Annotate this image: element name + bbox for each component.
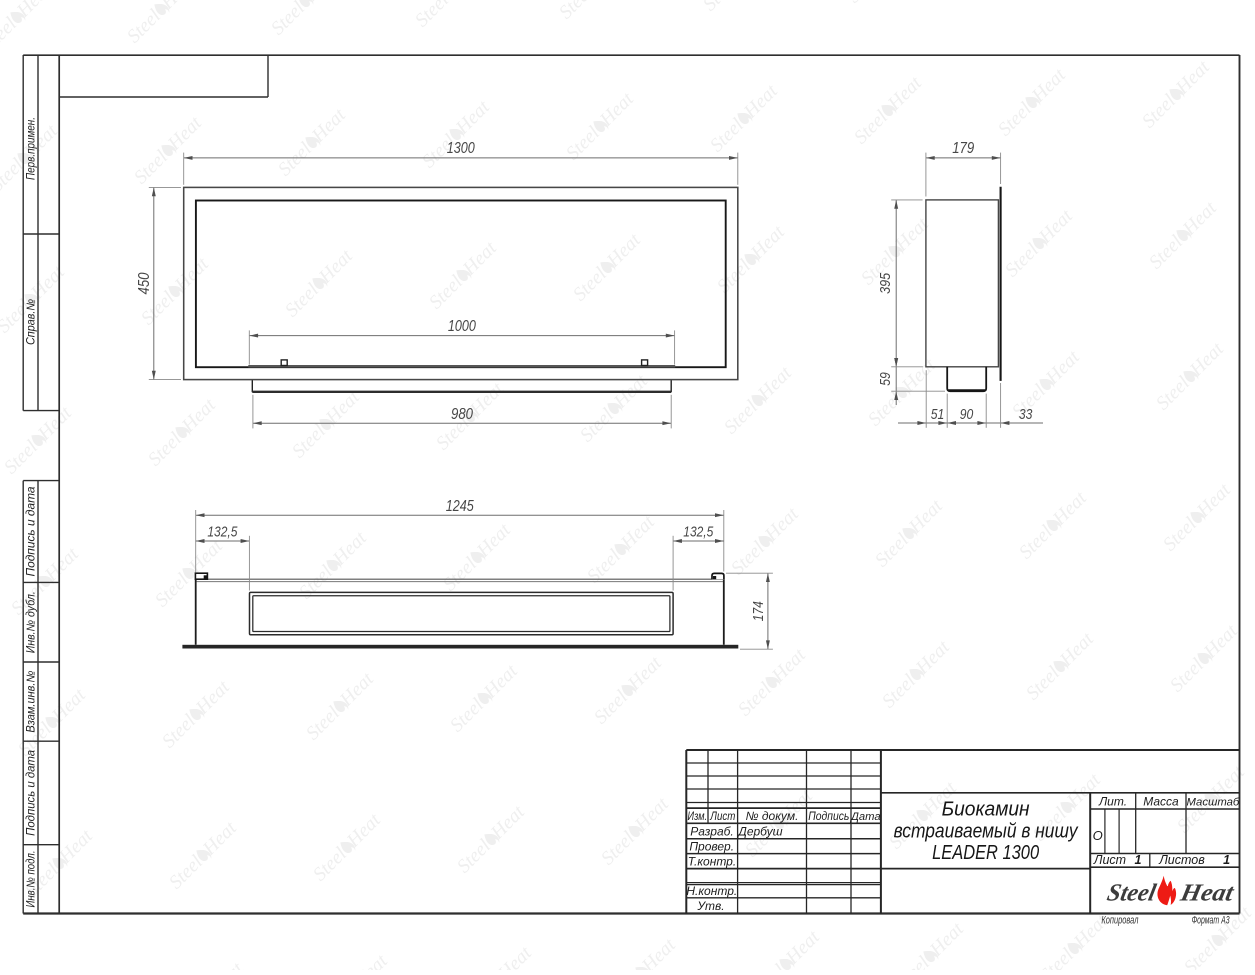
svg-text:Формат А3: Формат А3	[1192, 915, 1231, 927]
svg-text:Подпись: Подпись	[808, 811, 849, 823]
svg-text:Взам.инв.№: Взам.инв.№	[26, 670, 38, 733]
svg-text:О: О	[1093, 828, 1103, 843]
svg-text:Масштаб: Масштаб	[1187, 796, 1240, 808]
svg-text:395: 395	[877, 272, 894, 294]
svg-text:1300: 1300	[447, 140, 475, 157]
svg-text:Листов: Листов	[1158, 853, 1205, 867]
svg-text:Разраб.: Разраб.	[690, 824, 733, 838]
svg-text:980: 980	[451, 406, 473, 423]
svg-text:Биокамин: Биокамин	[942, 798, 1030, 820]
svg-text:Дербуш: Дербуш	[736, 824, 782, 838]
svg-text:Steel: Steel	[1105, 880, 1159, 907]
svg-text:Лист: Лист	[1093, 853, 1126, 867]
svg-text:Подпись и дата: Подпись и дата	[26, 750, 38, 836]
svg-text:Т.контр.: Т.контр.	[688, 854, 736, 868]
svg-text:51: 51	[931, 407, 945, 423]
svg-text:1: 1	[1135, 853, 1142, 867]
svg-text:№ докум.: № докум.	[746, 809, 799, 823]
svg-text:1245: 1245	[446, 498, 474, 515]
svg-text:179: 179	[952, 140, 974, 157]
svg-text:Н.контр.: Н.контр.	[686, 884, 737, 898]
svg-text:1: 1	[1223, 853, 1230, 867]
svg-text:33: 33	[1019, 407, 1033, 423]
svg-text:Лит.: Лит.	[1098, 794, 1127, 808]
svg-text:Копировал: Копировал	[1101, 915, 1138, 927]
svg-text:встраиваемый в нишу: встраиваемый в нишу	[894, 820, 1079, 842]
svg-text:Изм.: Изм.	[688, 811, 708, 823]
svg-text:174: 174	[751, 601, 767, 621]
svg-text:Лист: Лист	[709, 811, 735, 823]
svg-text:Масса: Масса	[1143, 794, 1179, 808]
svg-text:90: 90	[960, 407, 974, 423]
svg-text:Справ.№: Справ.№	[26, 298, 38, 345]
svg-text:450: 450	[136, 272, 153, 294]
svg-text:Перв.примен.: Перв.примен.	[26, 117, 38, 180]
svg-text:LEADER 1300: LEADER 1300	[932, 842, 1039, 864]
svg-text:Провер.: Провер.	[689, 839, 734, 853]
svg-text:Дата: Дата	[849, 811, 881, 823]
svg-text:132,5: 132,5	[683, 524, 714, 540]
svg-text:59: 59	[878, 372, 894, 386]
svg-text:Подпись и дата: Подпись и дата	[26, 487, 38, 577]
svg-text:Утв.: Утв.	[696, 899, 724, 913]
svg-text:132,5: 132,5	[207, 524, 238, 540]
svg-text:Инв.№ подл.: Инв.№ подл.	[26, 851, 38, 908]
svg-text:Heat: Heat	[1177, 880, 1237, 907]
svg-text:Инв.№ дубл.: Инв.№ дубл.	[26, 591, 38, 653]
svg-text:1000: 1000	[448, 318, 476, 335]
